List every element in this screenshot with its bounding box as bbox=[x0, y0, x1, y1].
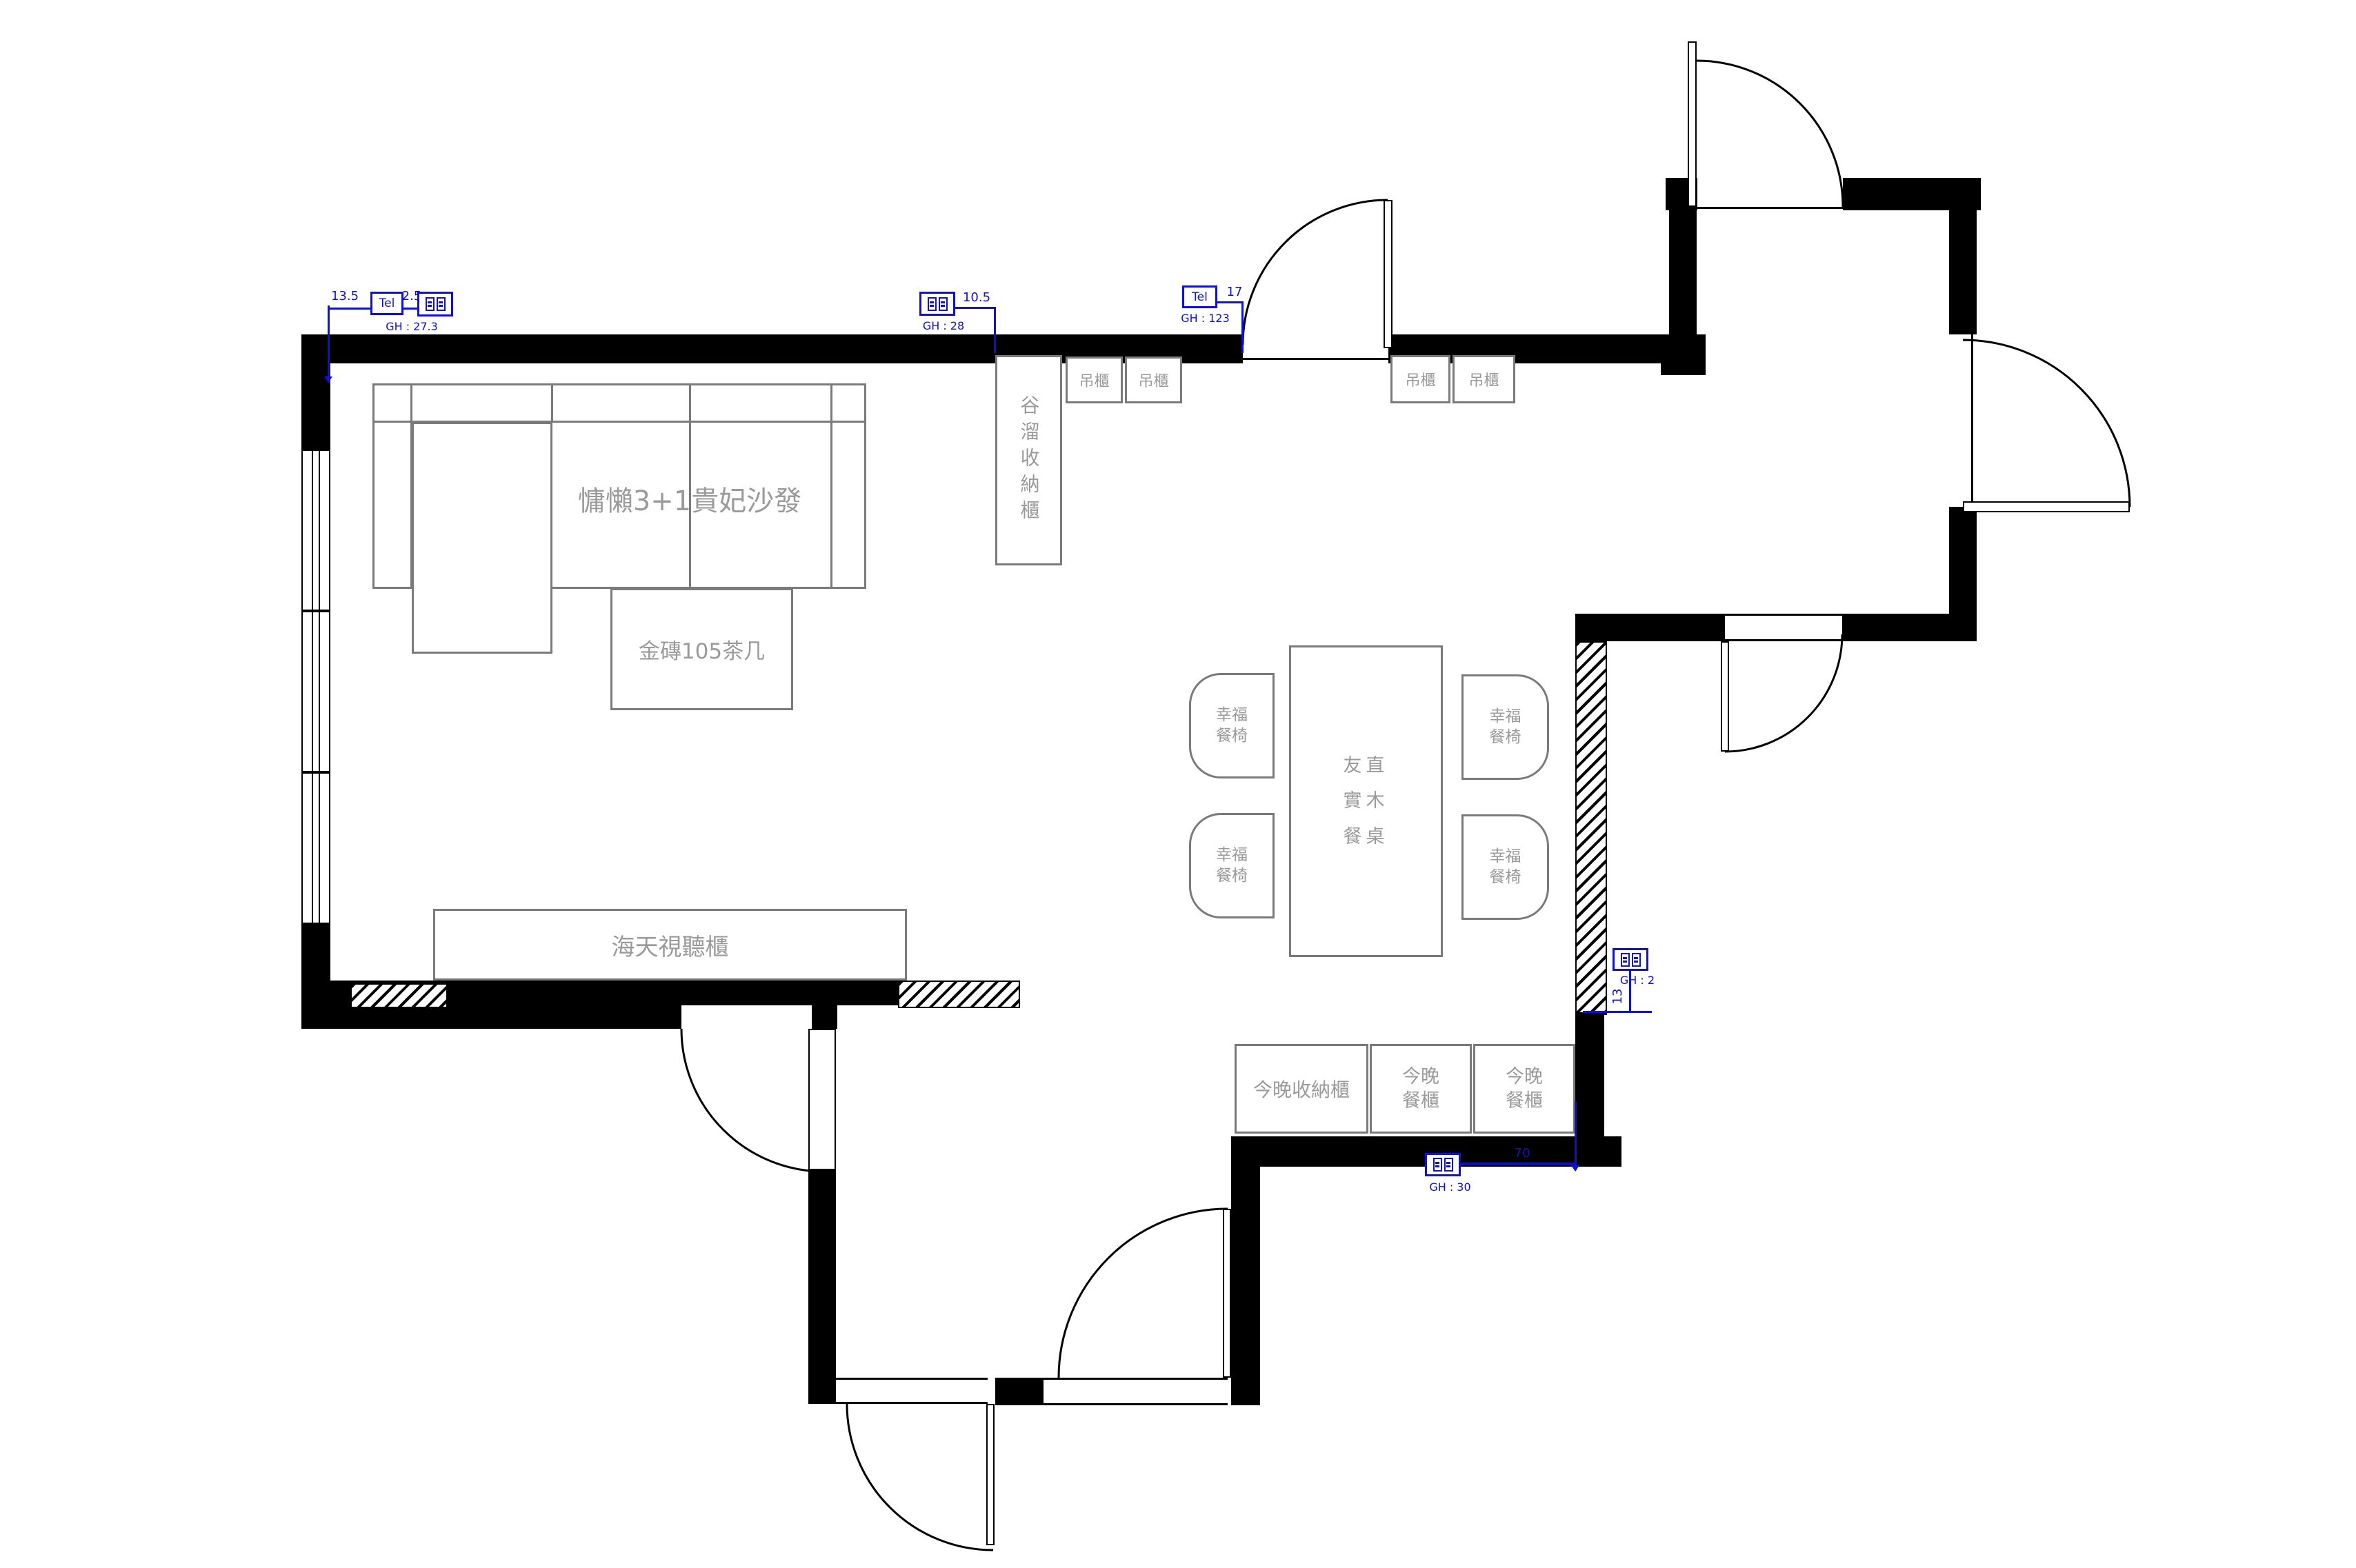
chair-label-line: 餐椅 bbox=[1216, 726, 1248, 747]
dim-a4-tick bbox=[1583, 1011, 1652, 1013]
chair-label-line: 餐椅 bbox=[1490, 867, 1521, 888]
sofa-band-divider-1 bbox=[551, 385, 553, 422]
window-left-3-mullion bbox=[312, 772, 313, 924]
floor-plan: 慵懶3+1貴妃沙發 金磚105茶几 海天視聽櫃 谷溜收納櫃 吊櫃 吊櫃 吊櫃 吊… bbox=[0, 0, 2356, 1568]
dim-a2-vline bbox=[994, 307, 996, 353]
tall-cabinet-label: 谷溜收納櫃 bbox=[1015, 395, 1043, 526]
socket-icon bbox=[939, 297, 948, 311]
sideboard-label-line: 今晚 bbox=[1402, 1065, 1439, 1089]
gh-a3: GH : 123 bbox=[1172, 311, 1238, 325]
door-kitchen-arc bbox=[1059, 1209, 1228, 1378]
wall-below-partition bbox=[1575, 1012, 1604, 1167]
door-living-opening bbox=[681, 1005, 812, 1029]
dim-a1-vline bbox=[328, 305, 330, 383]
dim-a4-vline bbox=[1629, 971, 1631, 1012]
door-hall-sill-top bbox=[836, 1378, 988, 1380]
hanging-cabinet-3: 吊櫃 bbox=[1390, 355, 1450, 403]
wall-hatch-bottom-left bbox=[350, 983, 448, 1008]
gh-a4: GH : 2 bbox=[1615, 973, 1659, 987]
dim-a5-vline bbox=[1575, 1101, 1577, 1170]
sideboard-label-line: 今晚 bbox=[1506, 1065, 1543, 1089]
hanging-cabinet-4: 吊櫃 bbox=[1452, 355, 1515, 403]
dim-a3-hline bbox=[1217, 301, 1243, 303]
window-left-1-mullion bbox=[312, 450, 313, 611]
wall-east-upper bbox=[1949, 210, 1977, 334]
door-east-leaf bbox=[1963, 501, 2130, 512]
wall-entry-south-west bbox=[1575, 614, 1725, 641]
dim-a4-value: 13 bbox=[1606, 986, 1629, 1007]
hanging-cabinet-1: 吊櫃 bbox=[1066, 356, 1123, 403]
wall-living-bottom-east bbox=[837, 981, 898, 1005]
dim-a3-vline bbox=[1241, 301, 1244, 353]
window-left-3 bbox=[301, 772, 330, 924]
chair-label-line: 餐椅 bbox=[1490, 727, 1521, 748]
wall-corridor-bottom bbox=[995, 1378, 1044, 1405]
door-arcs-layer bbox=[0, 0, 2356, 1568]
door-entry-top-leaf bbox=[1688, 41, 1697, 207]
dim-a3-value: 17 bbox=[1222, 285, 1247, 299]
sideboard-label-line: 餐櫃 bbox=[1402, 1089, 1439, 1113]
tel-label: Tel bbox=[379, 296, 395, 310]
socket-icon bbox=[928, 297, 937, 311]
power-outlet-a1 bbox=[417, 292, 453, 316]
dining-table: 友直 實木 餐桌 bbox=[1289, 645, 1443, 957]
door-east-jamb-line bbox=[1971, 334, 1973, 507]
coffee-table: 金磚105茶几 bbox=[610, 588, 793, 710]
chair-bottom-right: 幸福 餐椅 bbox=[1461, 814, 1549, 920]
sofa-armrest-right-line bbox=[830, 385, 832, 587]
window-left-2-mullion bbox=[312, 611, 313, 772]
wall-hatch-bottom-right bbox=[898, 981, 1020, 1008]
door-entry-top-sill bbox=[1697, 207, 1843, 209]
sofa-band-divider-2 bbox=[689, 385, 691, 422]
chair-label-line: 幸福 bbox=[1216, 705, 1248, 726]
dim-a5-value: 70 bbox=[1509, 1146, 1535, 1160]
hanging-cabinet-2: 吊櫃 bbox=[1125, 356, 1182, 403]
door-living-leaf bbox=[808, 1029, 836, 1170]
hanging-cabinet-4-label: 吊櫃 bbox=[1468, 368, 1499, 390]
hanging-cabinet-2-label: 吊櫃 bbox=[1138, 369, 1168, 391]
dining-table-label-2: 實木 bbox=[1344, 783, 1389, 818]
door-entry-south-leaf bbox=[1721, 641, 1729, 752]
sofa-label: 慵懶3+1貴妃沙發 bbox=[566, 481, 814, 516]
window-left-1 bbox=[301, 450, 330, 611]
dim-a5-hline bbox=[1461, 1163, 1577, 1165]
socket-icon bbox=[1444, 1158, 1453, 1172]
door-entry-south-sill-bottom bbox=[1725, 639, 1842, 641]
wall-corridor-left bbox=[808, 1170, 836, 1404]
wall-entry-left bbox=[1669, 210, 1697, 354]
partition-hatched bbox=[1575, 641, 1607, 1015]
tv-cabinet-label: 海天視聽櫃 bbox=[612, 928, 729, 962]
chair-bottom-left: 幸福 餐椅 bbox=[1189, 813, 1275, 918]
window-left-2 bbox=[301, 611, 330, 772]
chair-label-line: 幸福 bbox=[1490, 707, 1521, 727]
wall-kitchen-left bbox=[1231, 1136, 1260, 1405]
gh-a5: GH : 30 bbox=[1421, 1180, 1479, 1194]
power-outlet-a4 bbox=[1613, 948, 1648, 971]
power-outlet-a5 bbox=[1425, 1153, 1461, 1176]
dining-table-label-3: 餐桌 bbox=[1344, 819, 1389, 854]
hanging-cabinet-3-label: 吊櫃 bbox=[1405, 368, 1435, 390]
gh-a2: GH : 28 bbox=[916, 318, 971, 333]
sofa-chaise bbox=[412, 422, 552, 654]
sideboard-1: 今晚 餐櫃 bbox=[1370, 1044, 1472, 1134]
dim-a5-arrow bbox=[1571, 1165, 1579, 1172]
dim-a2-hline bbox=[955, 307, 995, 309]
door-entry-south-sill-top bbox=[1725, 614, 1842, 616]
chair-label-line: 幸福 bbox=[1216, 845, 1248, 866]
door-kitchen-sill-top bbox=[1044, 1378, 1228, 1380]
door-entry-top-arc bbox=[1697, 61, 1843, 207]
wall-entry-top-east bbox=[1843, 178, 1981, 210]
door-top-sill bbox=[1243, 358, 1388, 360]
chair-top-left: 幸福 餐椅 bbox=[1189, 673, 1275, 778]
door-hall-arc bbox=[847, 1404, 993, 1550]
door-east-arc bbox=[1963, 340, 2130, 507]
sideboard-label-line: 餐櫃 bbox=[1506, 1089, 1543, 1113]
door-hall-sill-bottom bbox=[836, 1402, 988, 1404]
window-left-2-mullion2 bbox=[319, 611, 320, 772]
tall-cabinet: 谷溜收納櫃 bbox=[995, 355, 1062, 565]
cabinet-storage-label: 今晚收納櫃 bbox=[1253, 1075, 1350, 1103]
wall-east-lower bbox=[1949, 507, 1977, 641]
window-left-1-mullion2 bbox=[319, 450, 320, 611]
chair-top-right: 幸福 餐椅 bbox=[1461, 674, 1549, 780]
door-top-arc bbox=[1243, 200, 1388, 345]
door-kitchen-sill-bottom bbox=[1044, 1403, 1228, 1405]
dim-a1-hline bbox=[328, 308, 372, 310]
door-kitchen-leaf bbox=[1223, 1209, 1231, 1378]
dim-a1-arrow bbox=[324, 376, 332, 383]
dim-a1-hline2 bbox=[403, 308, 419, 310]
coffee-table-label: 金磚105茶几 bbox=[639, 634, 765, 665]
wall-left-upper bbox=[301, 334, 330, 450]
socket-icon bbox=[437, 297, 446, 311]
tv-cabinet: 海天視聽櫃 bbox=[433, 909, 907, 981]
chair-label-line: 幸福 bbox=[1490, 847, 1521, 867]
sofa-armrest-left-line bbox=[410, 385, 412, 587]
tel-outlet-a3: Tel bbox=[1182, 285, 1217, 308]
sofa-back-line bbox=[375, 421, 864, 423]
dining-table-label-1: 友直 bbox=[1344, 748, 1389, 783]
door-hall-leaf bbox=[986, 1404, 995, 1545]
power-outlet-a2 bbox=[919, 292, 955, 316]
door-living-arc bbox=[681, 1029, 824, 1172]
socket-icon bbox=[1632, 953, 1641, 967]
gh-a1: GH : 27.3 bbox=[370, 319, 453, 334]
wall-top-step bbox=[1661, 354, 1706, 375]
window-left-3-mullion2 bbox=[319, 772, 320, 924]
sideboard-2: 今晚 餐櫃 bbox=[1473, 1044, 1575, 1134]
cabinet-storage: 今晚收納櫃 bbox=[1235, 1044, 1368, 1134]
socket-icon bbox=[1621, 953, 1630, 967]
tel-label: Tel bbox=[1192, 290, 1208, 304]
chair-label-line: 餐椅 bbox=[1216, 866, 1248, 887]
door-top-leaf bbox=[1384, 200, 1392, 348]
door-entry-south-arc bbox=[1725, 634, 1842, 752]
dim-a2-value: 10.5 bbox=[957, 290, 996, 305]
dim-a1-value-left: 13.5 bbox=[317, 288, 372, 303]
hanging-cabinet-1-label: 吊櫃 bbox=[1079, 369, 1109, 391]
socket-icon bbox=[1433, 1158, 1442, 1172]
socket-icon bbox=[426, 297, 435, 311]
